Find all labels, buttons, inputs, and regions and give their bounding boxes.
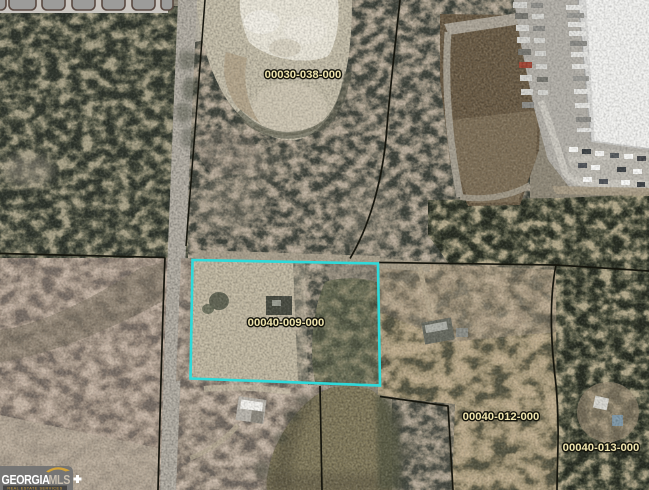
svg-text:GEORGIA: GEORGIA — [2, 472, 51, 487]
svg-text:REAL ESTATE SERVICES: REAL ESTATE SERVICES — [7, 486, 62, 490]
svg-text:00040-013-000: 00040-013-000 — [563, 442, 640, 454]
svg-text:MLS: MLS — [49, 472, 71, 487]
svg-text:00030-038-000: 00030-038-000 — [265, 69, 342, 81]
svg-text:00040-012-000: 00040-012-000 — [463, 411, 540, 423]
svg-text:00040-009-000: 00040-009-000 — [248, 317, 325, 329]
